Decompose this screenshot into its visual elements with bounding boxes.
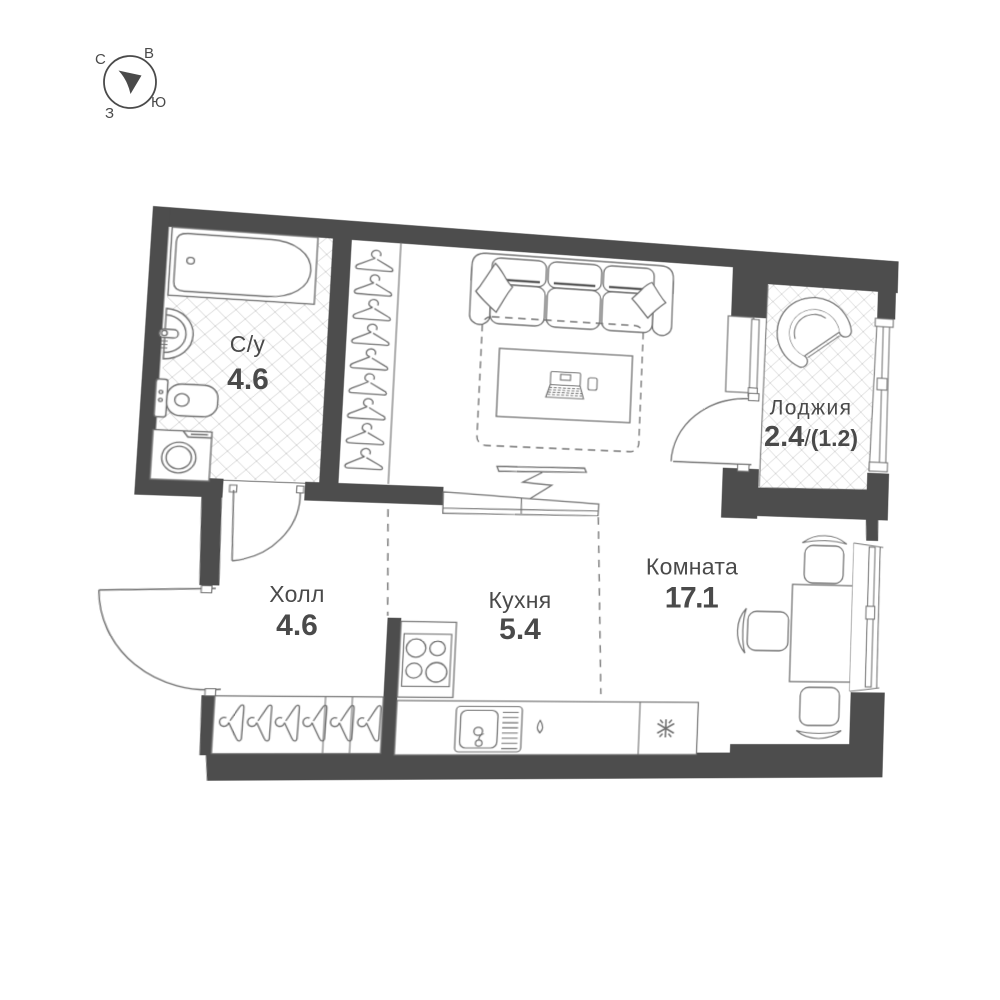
svg-text:С/у: С/у [230, 331, 266, 357]
svg-text:2.4/(1.2): 2.4/(1.2) [764, 421, 858, 453]
svg-text:17.1: 17.1 [665, 582, 718, 615]
svg-text:Комната: Комната [646, 554, 738, 580]
svg-text:4.6: 4.6 [276, 609, 318, 642]
svg-text:5.4: 5.4 [499, 613, 541, 646]
svg-text:Лоджия: Лоджия [770, 397, 853, 420]
svg-text:Кухня: Кухня [488, 587, 551, 613]
svg-text:4.6: 4.6 [227, 363, 269, 396]
svg-text:Холл: Холл [269, 581, 324, 607]
